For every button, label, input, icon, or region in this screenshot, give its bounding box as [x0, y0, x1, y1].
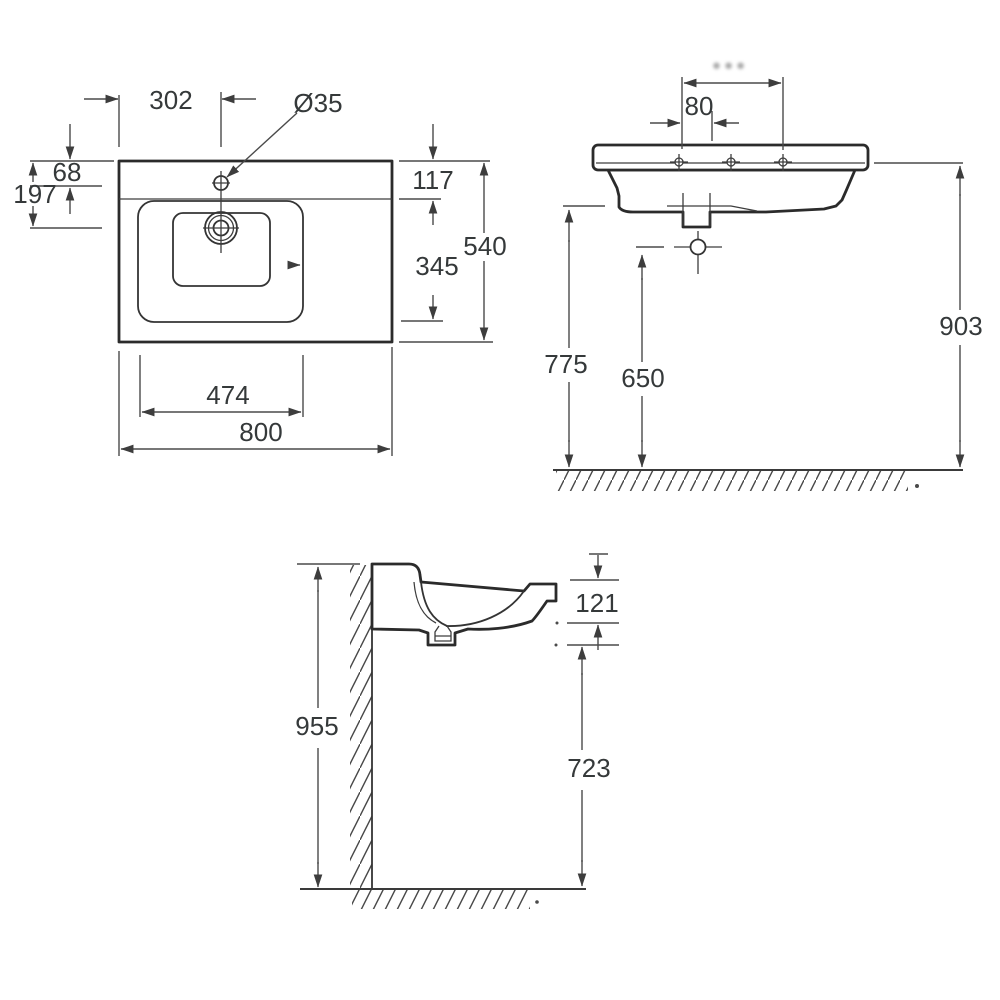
- dim-955-label: 955: [295, 711, 338, 741]
- dim-197-label: 197: [13, 179, 56, 209]
- side-wall-hatch: [350, 565, 372, 889]
- front-ground-hatch: [556, 471, 908, 491]
- side-floor-hatch-end-dot: [535, 900, 539, 904]
- plan-view: 302 Ø35 68 197 117 345 540 474: [13, 85, 506, 456]
- side-floor-hatch: [352, 890, 530, 909]
- front-basin-body: [608, 170, 855, 227]
- dia-35-label: Ø35: [293, 88, 342, 118]
- dim-903-label: 903: [939, 311, 982, 341]
- ext-line-121-bottom-dot: [556, 622, 559, 625]
- dim-775-label: 775: [544, 349, 587, 379]
- front-supply-cross: [674, 231, 722, 274]
- dim-121-label: 121: [575, 588, 618, 618]
- dim-345-label: 345: [415, 251, 458, 281]
- dim-540-label: 540: [463, 231, 506, 261]
- side-view: 955 121 723: [295, 554, 619, 909]
- dim-650-label: 650: [621, 363, 664, 393]
- blurred-dimension-smudge: ●●●: [712, 57, 748, 74]
- ext-line-723-top-dot: [555, 644, 558, 647]
- dim-80-label: 80: [685, 91, 714, 121]
- plan-countertop-outline: [119, 161, 392, 342]
- technical-drawing-page: 302 Ø35 68 197 117 345 540 474: [0, 0, 1000, 1000]
- dim-723-label: 723: [567, 753, 610, 783]
- dim-474-label: 474: [206, 380, 249, 410]
- dim-68-label: 68: [53, 157, 82, 187]
- washbasin-dimension-drawing: 302 Ø35 68 197 117 345 540 474: [0, 0, 1000, 1000]
- dim-302-label: 302: [149, 85, 192, 115]
- side-basin-section-outline: [372, 564, 556, 645]
- front-view: ●●● 80 775 650 903: [544, 57, 982, 491]
- front-ground-hatch-end-dot: [915, 484, 919, 488]
- dim-800-label: 800: [239, 417, 282, 447]
- dim-117-label: 117: [412, 165, 453, 195]
